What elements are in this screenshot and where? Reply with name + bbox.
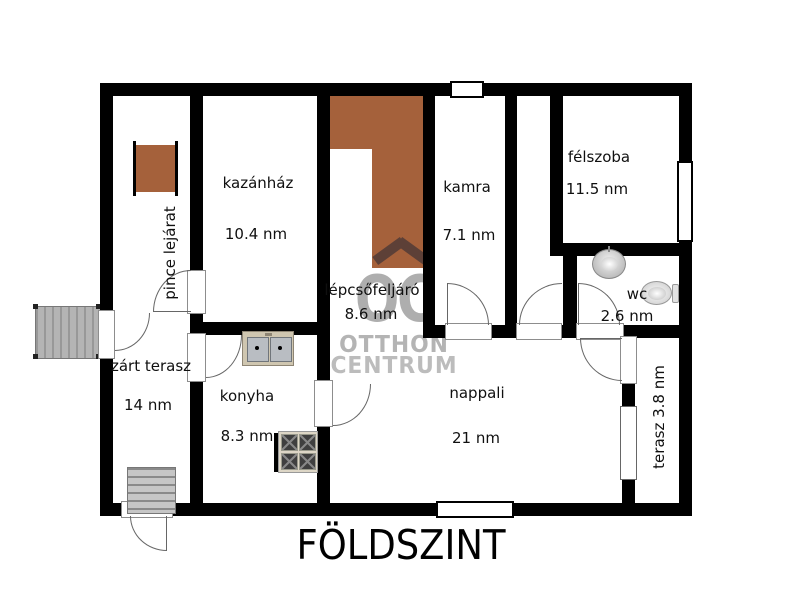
door-arc (115, 313, 150, 351)
room-area-konyha: 8.3 nm (221, 427, 274, 445)
door-opening (516, 323, 562, 340)
wall (100, 83, 692, 96)
floor-title: FÖLDSZINT (297, 521, 506, 569)
wall (679, 83, 692, 516)
wall (190, 380, 203, 503)
room-label-wc: wc (627, 285, 648, 303)
room-area-zart-terasz: 14 nm (124, 396, 172, 414)
door-arc (519, 283, 562, 325)
wall (423, 96, 435, 333)
door-opening (314, 380, 333, 427)
room-area-lepcsofeljaro: 8.6 nm (345, 305, 398, 323)
room-label-pince-lejarat: pince lejárat (161, 206, 179, 299)
wall (505, 96, 517, 328)
door-opening (98, 310, 115, 359)
watermark-line2: CENTRUM (330, 353, 457, 379)
wall (100, 83, 113, 516)
door-arc (580, 338, 622, 381)
washbasin-icon (592, 249, 626, 279)
room-label-lepcsofeljaro: lépcsőfeljáró (324, 281, 419, 299)
room-area-nappali: 21 nm (452, 429, 500, 447)
door-arc (130, 516, 167, 551)
room-area-felszoba: 11.5 nm (566, 180, 628, 198)
room-area-kazanhaz: 10.4 nm (225, 225, 287, 243)
wall (317, 96, 330, 382)
room-label-konyha: konyha (220, 387, 274, 405)
window (620, 406, 637, 480)
toilet-tank (672, 284, 679, 303)
window (450, 81, 484, 98)
door-arc (333, 384, 371, 426)
kitchen-sink-icon (242, 331, 294, 366)
wall (490, 325, 518, 338)
wall (190, 96, 203, 272)
staircase-area-upper (330, 96, 423, 149)
door-opening (620, 336, 637, 384)
room-label-felszoba: félszoba (568, 148, 630, 166)
wall (550, 96, 563, 246)
room-label-zart-terasz: zárt terasz (111, 357, 191, 375)
stove-icon (278, 431, 318, 473)
stairs-icon (127, 467, 176, 514)
wall (622, 478, 635, 516)
wall (563, 243, 577, 329)
door-arc (206, 335, 242, 378)
room-label-terasz: terasz 3.8 nm (650, 365, 668, 469)
room-label-kamra: kamra (443, 178, 491, 196)
room-label-kazanhaz: kazánház (223, 174, 294, 192)
watermark-initials: OC (355, 263, 433, 337)
room-area-wc: 2.6 nm (601, 307, 654, 325)
deck-post (33, 304, 38, 309)
room-area-kamra: 7.1 nm (443, 226, 496, 244)
exterior-deck (35, 306, 101, 359)
floor-plan: OC OTTHON CENTRUM (0, 0, 800, 614)
wall (317, 425, 330, 516)
basement-hatch (136, 145, 175, 192)
door-arc (447, 283, 489, 325)
basement-hatch-edge-right (175, 141, 178, 196)
window (436, 501, 514, 518)
wall (100, 503, 692, 516)
room-label-nappali: nappali (449, 384, 504, 402)
door-opening (445, 323, 492, 340)
window (677, 161, 693, 242)
deck-post (33, 354, 38, 359)
